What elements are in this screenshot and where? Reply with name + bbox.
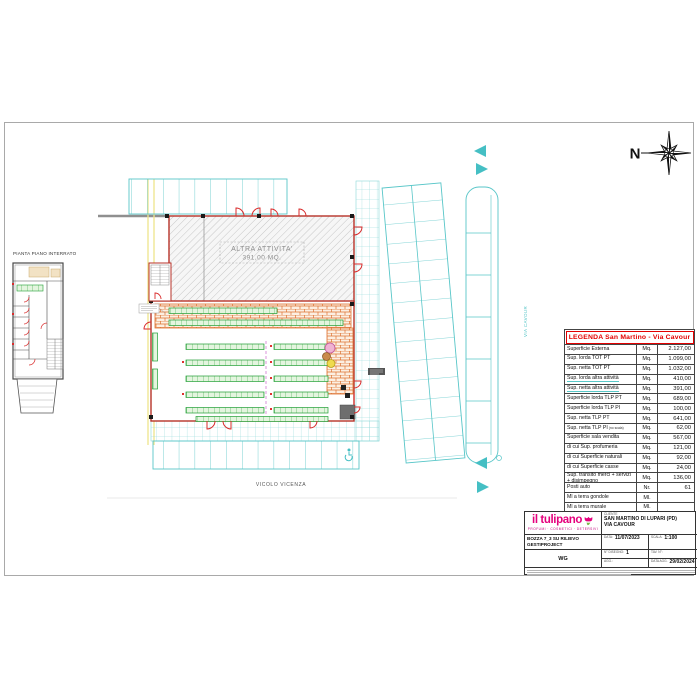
revision-date-label: DATA AGG.	[651, 560, 668, 563]
initials-cell: WG	[525, 550, 602, 567]
revision-date-value: 29/02/2024	[670, 560, 695, 566]
drawing-sheet: N	[4, 122, 694, 576]
altra-attivita-label: ALTRA ATTIVITA'	[231, 246, 293, 253]
basement-plan: PIANTA PIANO INTERRATO	[12, 251, 77, 413]
client-cell: CLIENTE SAN MARTINO DI LUPARI (PD) VIA C…	[602, 512, 697, 535]
legend-rows: Superficie EsternaMq.2.127,00 Sup. lorda…	[565, 344, 694, 512]
legend-row: Sup. netta altra attivitàMq.391,00	[565, 384, 694, 394]
sheet-number-cell: TAV. N°:	[649, 550, 697, 559]
client-name-line2: VIA CAVOUR	[604, 522, 695, 528]
revision-label: AGG.:	[604, 560, 613, 563]
basement-plan-title: PIANTA PIANO INTERRATO	[13, 251, 77, 256]
disclaimer-cell	[525, 567, 697, 576]
compass-rose-icon: N	[630, 131, 691, 175]
date-label: DATA:	[604, 536, 613, 539]
legend-row: di cui Sup. profumeriaMq.121,00	[565, 443, 694, 453]
legend-row: Superficie lorda TLP PTMq.689,00	[565, 393, 694, 403]
drawing-number-cell: N° DISEGNO: 1	[602, 550, 649, 559]
legend-row: Superficie lorda TLP PIMq.100,00	[565, 403, 694, 413]
date-cell: DATA: 11/07/2023	[602, 535, 649, 550]
legend-row: Sup. netta TLP PI(no scala)Mq.62,00	[565, 423, 694, 433]
entrance-sign	[368, 368, 385, 375]
project-cell: BOZZA 7_3 SU RILIEVO GESTIPROJECT	[525, 535, 602, 550]
legend-row: Sup. netta TLP PTMq.641,00	[565, 413, 694, 423]
tulip-icon	[583, 515, 594, 526]
legend-row: di cui Superficie naturaliMq.92,00	[565, 453, 694, 463]
legend-table: LEGENDA San Martino - Via Cavour Superfi…	[564, 329, 695, 513]
scale-label: SCALA:	[651, 536, 662, 539]
legend-row: Sup. lorda altra attivitàMq.410,00	[565, 374, 694, 384]
scale-value: 1:100	[664, 536, 677, 542]
legend-row: di cui Superficie casseMq.24,00	[565, 463, 694, 473]
logo-cell: il tulipano PROFUMI · COSMETICI · DETERS…	[525, 512, 602, 535]
legend-row: Sup. transito merci + servizi + disimpeg…	[565, 472, 694, 482]
parking-row-bottom	[153, 441, 359, 469]
sheet-number-label: TAV. N°:	[651, 551, 663, 554]
legend-row: Superficie sala venditaMq.567,00	[565, 433, 694, 443]
legend-title: LEGENDA San Martino - Via Cavour	[566, 331, 694, 344]
scale-cell: SCALA: 1:100	[649, 535, 697, 550]
legend-row: Sup. lorda TOT PTMq.1.099,00	[565, 354, 694, 364]
parking-strip-middle	[382, 183, 465, 463]
legend-row: Posti autoNr.61	[565, 482, 694, 492]
parking-strip-right	[466, 187, 502, 463]
street-label-via-cavour: VIA CAVOUR	[523, 305, 528, 337]
title-block: il tulipano PROFUMI · COSMETICI · DETERS…	[524, 511, 696, 575]
revision-date-cell: DATA AGG. 29/02/2024	[649, 559, 697, 567]
project-line2: GESTIPROJECT	[527, 542, 599, 548]
legend-row: Ml a terra gondoleMl.	[565, 492, 694, 502]
revision-cell: AGG.:	[602, 559, 649, 567]
logo-text: il tulipano	[532, 515, 582, 527]
traffic-arrow-icons	[474, 145, 489, 493]
stair-annex	[149, 263, 171, 301]
parking-row-top	[129, 179, 287, 214]
date-value: 11/07/2023	[615, 536, 640, 542]
altra-attivita-area-value: 391,00 MQ.	[243, 255, 282, 262]
drawing-number-value: 1	[626, 551, 629, 557]
main-building: ALTRA ATTIVITA' 391,00 MQ.	[139, 208, 385, 429]
logo-tagline: PROFUMI · COSMETICI · DETERSIVI	[528, 527, 598, 531]
legend-row: Superficie EsternaMq.2.127,00	[565, 344, 694, 354]
drawing-number-label: N° DISEGNO:	[604, 551, 624, 554]
legend-row: Sup. netta TOT PTMq.1.032,00	[565, 364, 694, 374]
compass-north-label: N	[630, 146, 641, 163]
screenshot-canvas: N	[0, 0, 700, 700]
street-label-vicolo-vicenza: VICOLO VICENZA	[256, 482, 306, 488]
